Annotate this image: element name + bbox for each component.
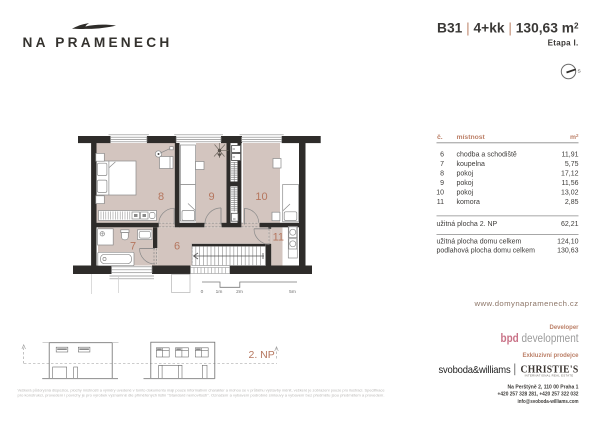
svg-text:pokoj: pokoj [457, 180, 474, 187]
svg-text:1m: 1m [216, 289, 223, 295]
svg-text:0: 0 [201, 289, 204, 295]
svg-text:podlahová plocha domu celkem: podlahová plocha domu celkem [437, 248, 536, 255]
svg-text:č.: č. [437, 134, 443, 141]
svg-text:8: 8 [158, 191, 164, 203]
svg-text:7: 7 [440, 161, 444, 168]
svg-text:bpd development: bpd development [501, 333, 580, 345]
svg-text:NA PRAMENECH: NA PRAMENECH [23, 35, 173, 50]
svg-text:Na Perštýně 2, 110 00 Praha 1: Na Perštýně 2, 110 00 Praha 1 [508, 384, 579, 390]
svg-text:7: 7 [130, 241, 136, 253]
svg-text:pokoj: pokoj [457, 189, 474, 196]
svg-text:11,56: 11,56 [562, 180, 579, 187]
svg-text:Exkluzivní prodejce: Exkluzivní prodejce [522, 353, 579, 359]
svg-text:17,12: 17,12 [561, 170, 579, 177]
svg-text:9: 9 [440, 180, 444, 187]
svg-text:11: 11 [273, 232, 284, 244]
svg-text:8: 8 [440, 170, 444, 177]
svg-text:5m: 5m [289, 289, 296, 295]
svg-text:info@svoboda-williams.com: info@svoboda-williams.com [518, 399, 579, 405]
svg-text:Developer: Developer [549, 325, 579, 331]
svg-text:koupelna: koupelna [457, 161, 486, 168]
svg-text:11,91: 11,91 [562, 151, 579, 158]
svg-text:pro konstrukci, provedení i po: pro konstrukci, provedení i povrchy je p… [18, 393, 385, 398]
svg-text:5,75: 5,75 [565, 161, 579, 168]
svg-text:INTERNATIONAL REAL ESTATE: INTERNATIONAL REAL ESTATE [525, 374, 574, 378]
svg-text:www.domynapramenech.cz: www.domynapramenech.cz [473, 299, 578, 308]
svg-text:S: S [578, 68, 581, 74]
svg-text:6: 6 [440, 151, 444, 158]
svg-text:6: 6 [174, 241, 180, 253]
svg-text:2. NP: 2. NP [249, 349, 275, 361]
svg-text:komora: komora [457, 199, 480, 206]
svg-text:+420 257 328 281, +420 257 322: +420 257 328 281, +420 257 322 032 [498, 392, 579, 398]
svg-text:místnost: místnost [457, 134, 486, 141]
svg-text:2,85: 2,85 [565, 199, 579, 206]
svg-text:9: 9 [208, 191, 214, 203]
svg-text:B31 | 4+kk | 130,63 m2: B31 | 4+kk | 130,63 m2 [437, 21, 579, 36]
svg-text:svoboda&williams: svoboda&williams [439, 364, 511, 376]
svg-text:130,63: 130,63 [557, 248, 579, 255]
svg-text:užitná plocha 2. NP: užitná plocha 2. NP [437, 221, 498, 228]
svg-text:11: 11 [437, 199, 444, 206]
svg-text:chodba a schodiště: chodba a schodiště [457, 151, 517, 158]
svg-text:Etapa I.: Etapa I. [548, 38, 579, 47]
svg-text:10: 10 [255, 191, 267, 203]
svg-text:2m: 2m [236, 289, 243, 295]
svg-text:10: 10 [436, 189, 444, 196]
svg-text:m2: m2 [570, 133, 579, 141]
svg-text:62,21: 62,21 [561, 221, 579, 228]
svg-text:124,10: 124,10 [557, 239, 579, 246]
svg-text:pokoj: pokoj [457, 170, 474, 177]
svg-text:13,02: 13,02 [561, 189, 579, 196]
svg-text:užitná plocha domu celkem: užitná plocha domu celkem [437, 239, 522, 246]
